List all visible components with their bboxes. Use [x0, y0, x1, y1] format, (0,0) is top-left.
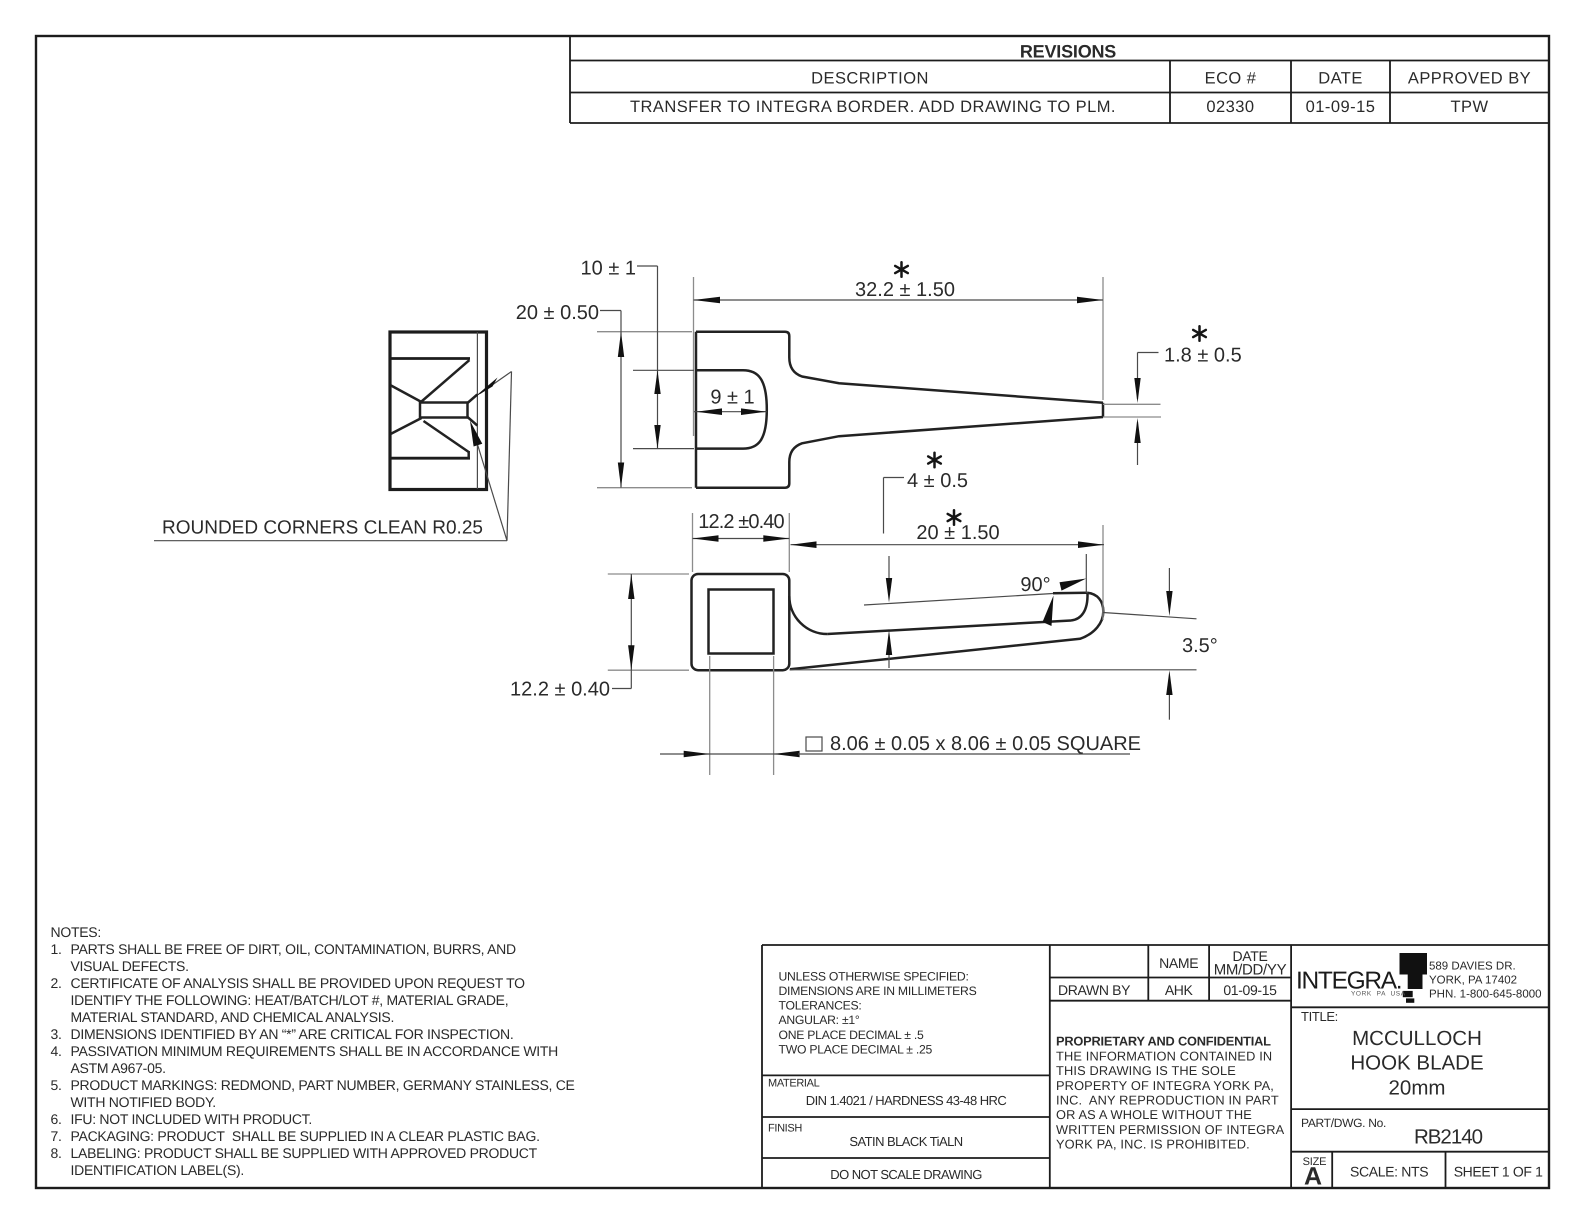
svg-text:TWO PLACE DECIMAL ± .25: TWO PLACE DECIMAL ± .25	[779, 1042, 933, 1056]
svg-text:4.: 4.	[51, 1043, 62, 1059]
svg-text:A: A	[1304, 1163, 1322, 1191]
svg-text:DIN 1.4021 / HARDNESS 43-48 HR: DIN 1.4021 / HARDNESS 43-48 HRC	[806, 1093, 1007, 1108]
svg-text:DIMENSIONS ARE IN MILLIMETERS: DIMENSIONS ARE IN MILLIMETERS	[779, 984, 977, 998]
svg-text:589 DAVIES DR.: 589 DAVIES DR.	[1429, 961, 1516, 973]
svg-text:LABELING: PRODUCT SHALL BE SUP: LABELING: PRODUCT SHALL BE SUPPLIED WITH…	[71, 1145, 538, 1161]
svg-text:APPROVED BY: APPROVED BY	[1408, 69, 1531, 87]
svg-text:PASSIVATION MINIMUM REQUIREMEN: PASSIVATION MINIMUM REQUIREMENTS SHALL B…	[71, 1043, 559, 1059]
svg-text:12.2 ± 0.40: 12.2 ± 0.40	[510, 679, 610, 701]
svg-text:01-09-15: 01-09-15	[1306, 98, 1376, 116]
svg-text:PROPERTY OF INTEGRA YORK PA,: PROPERTY OF INTEGRA YORK PA,	[1056, 1078, 1274, 1093]
svg-text:1.8 ± 0.5: 1.8 ± 0.5	[1164, 345, 1242, 367]
svg-text:MM/DD/YY: MM/DD/YY	[1214, 962, 1287, 979]
svg-text:IDENTIFICATION LABEL(S).: IDENTIFICATION LABEL(S).	[71, 1162, 245, 1178]
svg-text:YORK PA, INC. IS PROHIBITED.: YORK PA, INC. IS PROHIBITED.	[1056, 1137, 1250, 1152]
svg-text:FINISH: FINISH	[768, 1123, 802, 1135]
svg-text:WITH NOTIFIED BODY.: WITH NOTIFIED BODY.	[71, 1094, 216, 1110]
svg-text:20 ± 1.50: 20 ± 1.50	[916, 522, 999, 544]
svg-text:MATERIAL STANDARD, AND CHEMICA: MATERIAL STANDARD, AND CHEMICAL ANALYSIS…	[71, 1009, 395, 1025]
svg-text:ANGULAR: ±1°: ANGULAR: ±1°	[779, 1013, 860, 1027]
svg-text:DESCRIPTION: DESCRIPTION	[811, 69, 929, 87]
svg-text:MCCULLOCH: MCCULLOCH	[1352, 1027, 1482, 1050]
svg-text:ECO #: ECO #	[1205, 69, 1257, 87]
svg-text:SCALE: NTS: SCALE: NTS	[1350, 1163, 1428, 1179]
svg-text:2.: 2.	[51, 975, 62, 991]
svg-text:INC. ANY REPRODUCTION IN PART: INC. ANY REPRODUCTION IN PART	[1056, 1093, 1279, 1108]
svg-text:MATERIAL: MATERIAL	[768, 1078, 820, 1090]
svg-text:TOLERANCES:: TOLERANCES:	[779, 999, 862, 1013]
svg-text:YORK, PA 17402: YORK, PA 17402	[1429, 975, 1517, 987]
svg-text:TRANSFER TO INTEGRA BORDER. AD: TRANSFER TO INTEGRA BORDER. ADD DRAWING …	[630, 98, 1116, 116]
svg-text:20mm: 20mm	[1389, 1076, 1446, 1099]
svg-text:DRAWN BY: DRAWN BY	[1058, 982, 1131, 998]
svg-text:THE INFORMATION CONTAINED IN: THE INFORMATION CONTAINED IN	[1056, 1048, 1272, 1063]
svg-text:PRODUCT MARKINGS: REDMOND, PAR: PRODUCT MARKINGS: REDMOND, PART NUMBER, …	[71, 1077, 575, 1093]
svg-text:PACKAGING: PRODUCT SHALL BE S: PACKAGING: PRODUCT SHALL BE SUPPLIED IN …	[71, 1128, 540, 1144]
svg-text:02330: 02330	[1206, 98, 1254, 116]
svg-text:PROPRIETARY AND CONFIDENTIAL: PROPRIETARY AND CONFIDENTIAL	[1056, 1034, 1271, 1049]
svg-text:7.: 7.	[51, 1128, 62, 1144]
svg-text:YORK PA USA: YORK PA USA	[1351, 991, 1406, 998]
svg-text:12.2 ±0.40: 12.2 ±0.40	[698, 511, 784, 533]
svg-text:HOOK BLADE: HOOK BLADE	[1350, 1052, 1483, 1075]
svg-text:32.2 ± 1.50: 32.2 ± 1.50	[855, 279, 955, 301]
svg-text:SATIN BLACK TiALN: SATIN BLACK TiALN	[849, 1134, 962, 1149]
svg-text:6.: 6.	[51, 1111, 62, 1127]
svg-text:VISUAL DEFECTS.: VISUAL DEFECTS.	[71, 958, 189, 974]
svg-text:IDENTIFY THE FOLLOWING: HEAT/B: IDENTIFY THE FOLLOWING: HEAT/BATCH/LOT #…	[71, 992, 509, 1008]
svg-text:ROUNDED CORNERS CLEAN R0.25: ROUNDED CORNERS CLEAN R0.25	[162, 518, 483, 539]
svg-text:UNLESS OTHERWISE SPECIFIED:: UNLESS OTHERWISE SPECIFIED:	[779, 969, 969, 983]
svg-text:NAME: NAME	[1159, 955, 1198, 971]
svg-text:4 ± 0.5: 4 ± 0.5	[907, 470, 968, 492]
svg-text:PARTS SHALL BE FREE OF DIRT, O: PARTS SHALL BE FREE OF DIRT, OIL, CONTAM…	[71, 941, 516, 957]
svg-text:SHEET 1 OF 1: SHEET 1 OF 1	[1454, 1163, 1543, 1179]
svg-text:REVISIONS: REVISIONS	[1020, 41, 1116, 61]
svg-text:DATE: DATE	[1318, 69, 1363, 87]
svg-text:OR AS A WHOLE WITHOUT THE: OR AS A WHOLE WITHOUT THE	[1056, 1107, 1252, 1122]
svg-text:3.5°: 3.5°	[1182, 635, 1218, 657]
svg-text:TPW: TPW	[1450, 98, 1488, 116]
svg-text:WRITTEN PERMISSION OF INTEGRA: WRITTEN PERMISSION OF INTEGRA	[1056, 1122, 1285, 1137]
svg-text:1.: 1.	[51, 941, 62, 957]
svg-text:AHK: AHK	[1165, 982, 1194, 998]
svg-text:CERTIFICATE OF ANALYSIS SHALL: CERTIFICATE OF ANALYSIS SHALL BE PROVIDE…	[71, 975, 526, 991]
svg-text:ASTM A967-05.: ASTM A967-05.	[71, 1060, 166, 1076]
svg-text:3.: 3.	[51, 1026, 62, 1042]
svg-text:PART/DWG. No.: PART/DWG. No.	[1301, 1116, 1386, 1130]
svg-text:THIS DRAWING IS THE SOLE: THIS DRAWING IS THE SOLE	[1056, 1063, 1236, 1078]
svg-text:PHN. 1-800-645-8000: PHN. 1-800-645-8000	[1429, 988, 1542, 1000]
svg-text:NOTES:: NOTES:	[51, 924, 101, 940]
svg-text:TITLE:: TITLE:	[1301, 1009, 1338, 1024]
svg-text:5.: 5.	[51, 1077, 62, 1093]
svg-text:DO NOT SCALE DRAWING: DO NOT SCALE DRAWING	[830, 1167, 982, 1182]
svg-text:20 ± 0.50: 20 ± 0.50	[516, 302, 599, 324]
svg-text:9 ± 1: 9 ± 1	[710, 387, 754, 409]
svg-text:8.: 8.	[51, 1145, 62, 1161]
svg-text:ONE PLACE DECIMAL ± .5: ONE PLACE DECIMAL ± .5	[779, 1028, 924, 1042]
svg-text:8.06 ± 0.05 x 8.06 ± 0.05 SQUA: 8.06 ± 0.05 x 8.06 ± 0.05 SQUARE	[830, 733, 1141, 755]
svg-text:RB2140: RB2140	[1414, 1126, 1483, 1149]
svg-text:DIMENSIONS IDENTIFIED BY AN “*: DIMENSIONS IDENTIFIED BY AN “*” ARE CRIT…	[71, 1026, 514, 1042]
svg-text:01-09-15: 01-09-15	[1223, 982, 1277, 998]
svg-text:10 ± 1: 10 ± 1	[581, 258, 636, 280]
svg-text:90°: 90°	[1020, 574, 1050, 596]
svg-text:IFU: NOT INCLUDED WITH PRODUCT: IFU: NOT INCLUDED WITH PRODUCT.	[71, 1111, 313, 1127]
